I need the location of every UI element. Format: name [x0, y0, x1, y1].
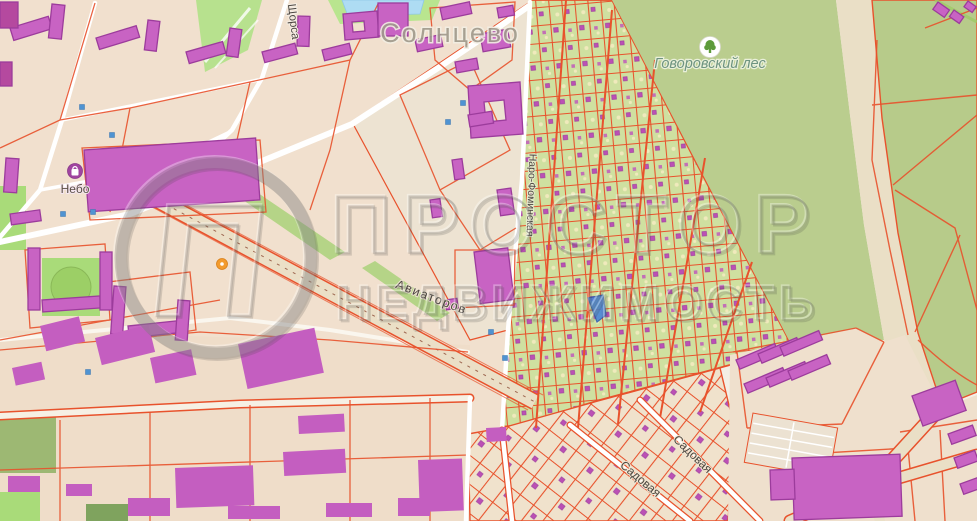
mall-building [84, 138, 260, 212]
tree-icon[interactable] [700, 37, 721, 58]
mall-label: Небо [61, 182, 90, 196]
poi-marker-orange[interactable] [217, 259, 228, 270]
shopping-bag-icon[interactable] [68, 164, 83, 179]
map-canvas[interactable]: Солнцево Говоровский лес Небо Щорса Авиа… [0, 0, 977, 521]
store-building [474, 248, 514, 304]
forest-label: Говоровский лес [654, 56, 766, 72]
district-label: Солнцево [380, 18, 520, 48]
map-viewport[interactable]: Солнцево Говоровский лес Небо Щорса Авиа… [0, 0, 977, 521]
